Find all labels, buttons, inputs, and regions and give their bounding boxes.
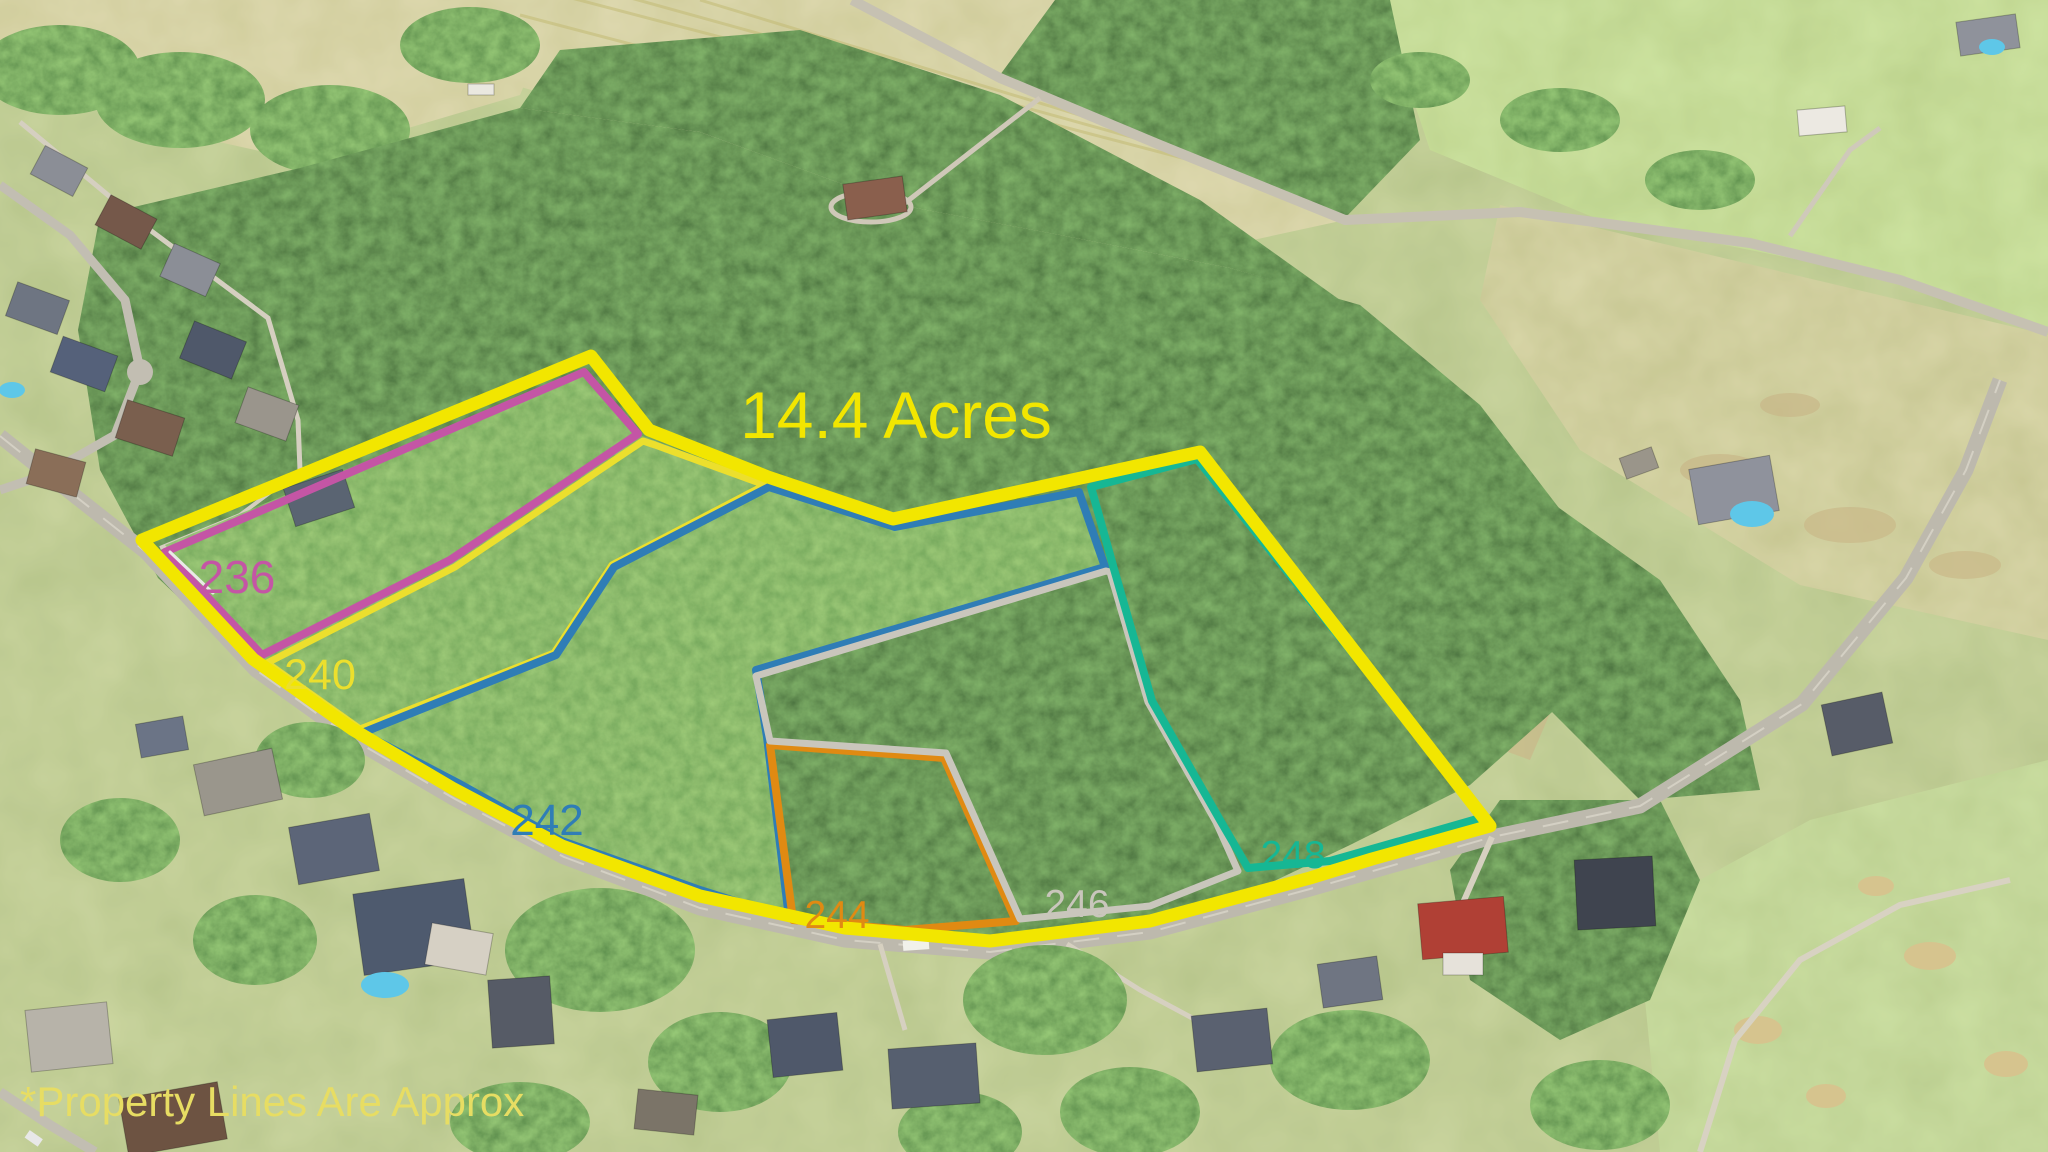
parcel-236-label: 236 xyxy=(199,551,276,603)
disclaimer-text: *Property Lines Are Approx xyxy=(20,1078,524,1125)
parcel-246-label: 246 xyxy=(1044,883,1109,926)
acreage-title: 14.4 Acres xyxy=(740,378,1052,452)
pool-top-left xyxy=(0,382,25,398)
parcel-240-label: 240 xyxy=(284,651,356,699)
aerial-property-screenshot: 14.4 Acres 236 240 242 244 246 248 *Prop… xyxy=(0,0,2048,1152)
aerial-scene: 14.4 Acres 236 240 242 244 246 248 *Prop… xyxy=(0,0,2048,1152)
pool-top-right xyxy=(1979,39,2005,55)
pool-mansion xyxy=(361,972,409,998)
cul-de-sac xyxy=(127,359,153,385)
parcel-248-label: 248 xyxy=(1260,834,1325,877)
parcel-244-label: 244 xyxy=(804,894,869,937)
parcel-242-label: 242 xyxy=(510,796,583,845)
pool-right-estate xyxy=(1730,501,1774,527)
